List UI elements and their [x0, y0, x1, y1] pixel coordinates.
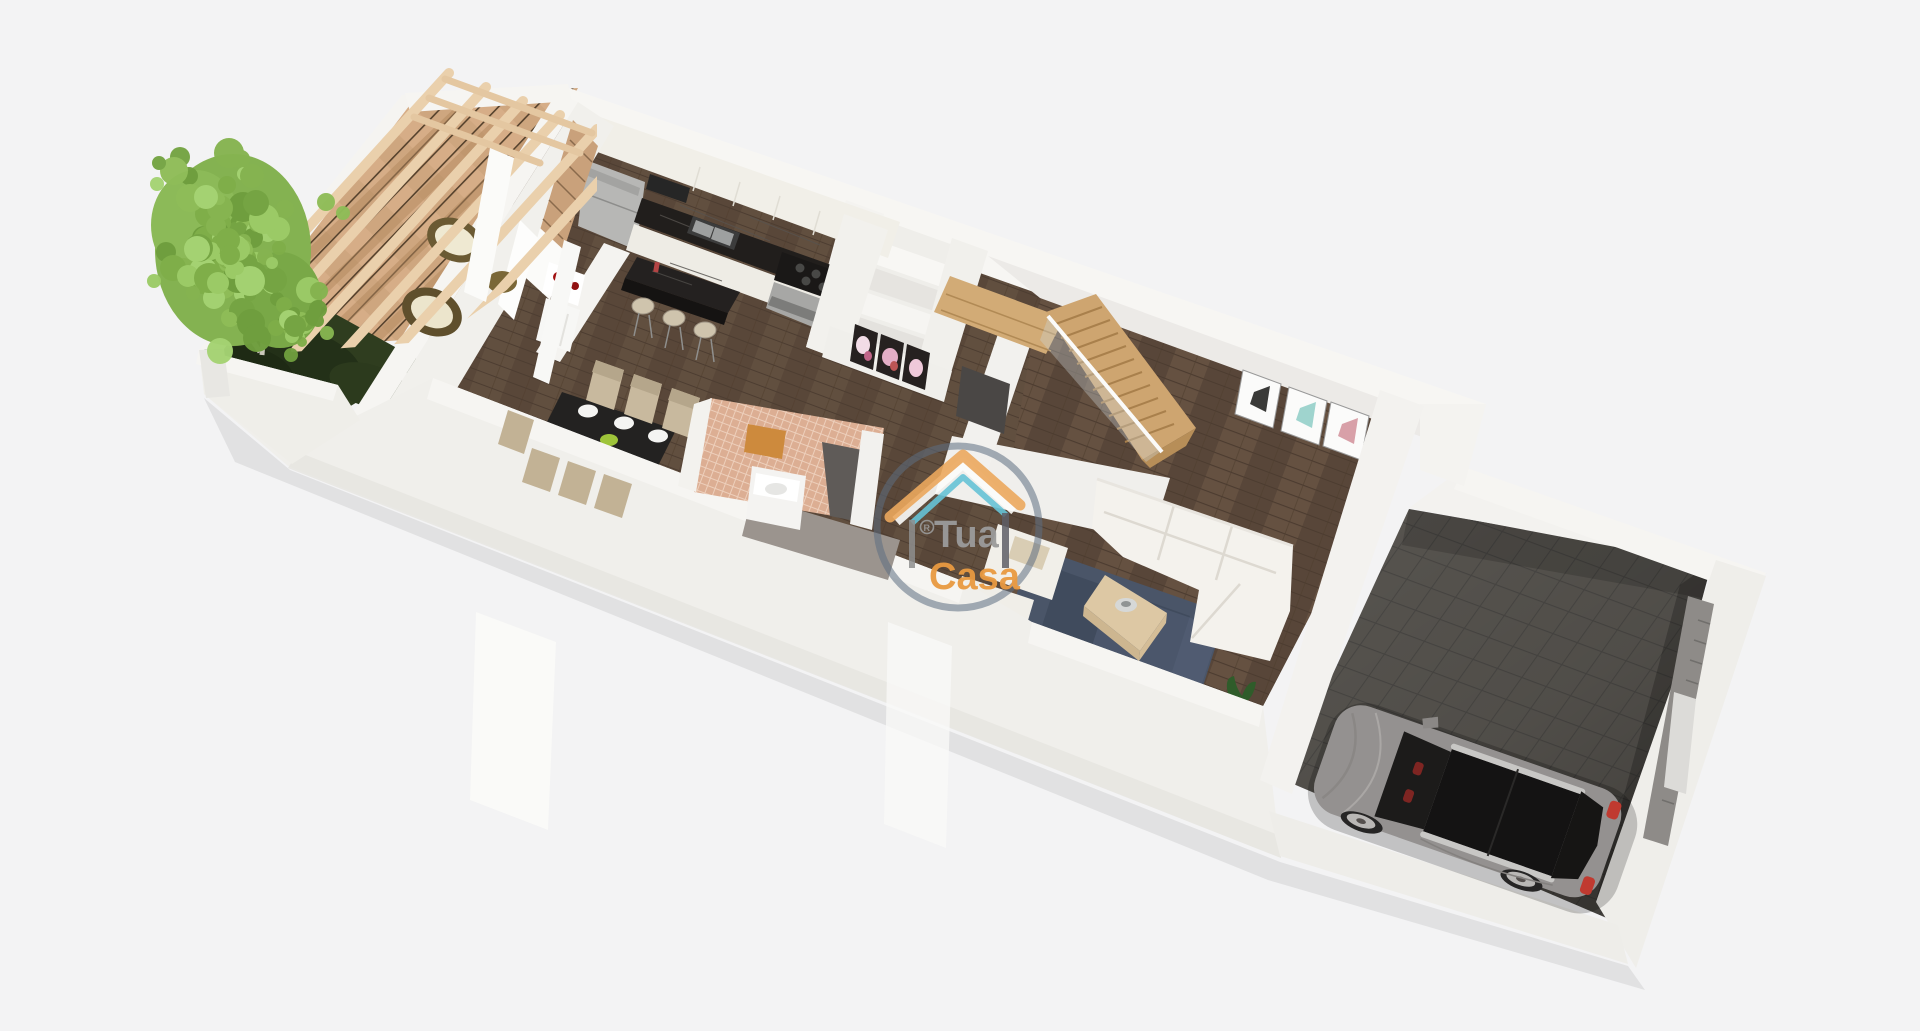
svg-text:R: R — [924, 523, 931, 533]
svg-text:Casa: Casa — [929, 556, 1021, 598]
svg-text:Tua: Tua — [934, 514, 1000, 556]
